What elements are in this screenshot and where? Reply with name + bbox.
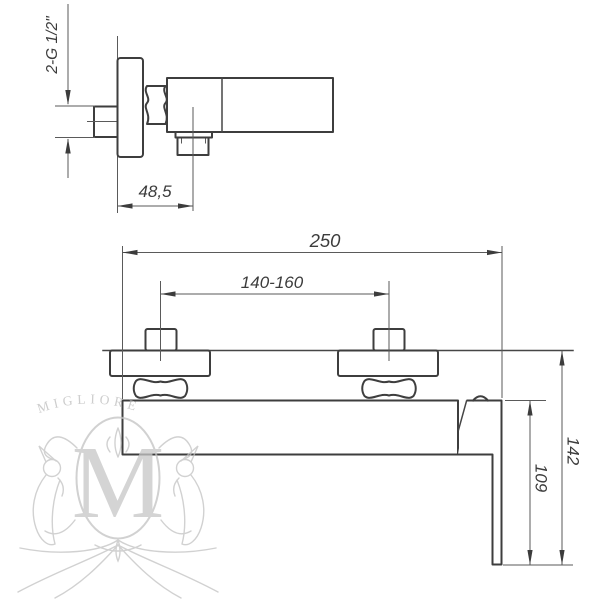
arrowhead [118,203,133,208]
arrowhead [527,401,532,416]
arrowhead [65,139,70,154]
lever-handle [458,401,502,565]
dim-142-label: 142 [564,437,583,466]
watermark-monogram: M [72,425,164,540]
cherub-body [174,475,204,545]
dim-mounting-centers: 140-160 [161,273,390,297]
wall-plate-side [118,58,144,157]
cherub-hat [39,446,56,462]
arrowhead [487,250,502,255]
dim-body-drop: 109 [527,401,550,566]
arrowhead [374,291,389,296]
arrowhead [559,550,564,565]
watermark-cherub-left [33,446,63,545]
faucet-body-front [123,401,459,455]
dim-109-label: 109 [532,464,551,493]
cherub-body [33,475,63,545]
faucet-dimension-drawing: 2-G 1/2" 48,5 [0,0,600,600]
dim-250-label: 250 [309,230,342,251]
side-view: 2-G 1/2" 48,5 [44,4,333,213]
front-view: 250 140-160 109 142 [103,230,583,565]
wall-plate-right [338,351,438,377]
watermark-cherub-right [174,446,204,545]
eccentric-nut-left [134,379,188,398]
watermark-foliage [18,540,218,598]
arrowhead [161,291,176,296]
dim-depth-label: 48,5 [138,182,172,201]
arrowhead [123,250,138,255]
thread-nut-side [146,86,167,124]
technical-drawing-canvas: 2-G 1/2" 48,5 [0,0,600,600]
dim-thread: 2-G 1/2" [44,4,95,178]
arrowhead [527,550,532,565]
arrowhead [559,351,564,366]
faucet-body-side [167,78,333,132]
arrowhead [65,90,70,105]
arrowhead [178,203,193,208]
dim-140-160-label: 140-160 [241,273,304,292]
dim-overall-drop: 142 [559,351,582,566]
dim-overall-length: 250 [123,230,503,255]
dim-thread-label: 2-G 1/2" [44,15,61,75]
dim-wall-to-outlet: 48,5 [118,182,194,209]
eccentric-nut-right [362,379,416,398]
